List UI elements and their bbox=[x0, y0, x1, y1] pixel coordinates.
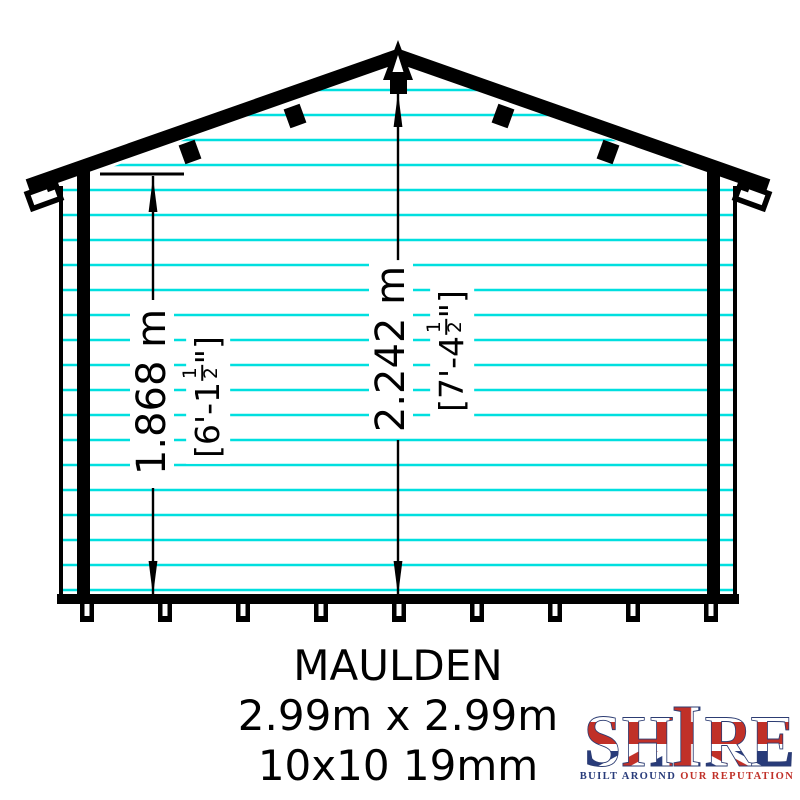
eave-height-imperial-label: [6'-112"] bbox=[186, 330, 230, 464]
arrow-up bbox=[394, 92, 403, 127]
ridge-height-metric-label: 2.242 m bbox=[369, 260, 413, 438]
roof-slope-right bbox=[398, 56, 768, 186]
shire-logo: S H I R E BUILT AROUND OUR REPUTATION bbox=[580, 682, 794, 786]
arrow-up bbox=[149, 177, 158, 212]
logo-tagline: BUILT AROUND OUR REPUTATION bbox=[580, 771, 794, 782]
purlin-block bbox=[179, 140, 202, 165]
tagline-right: OUR REPUTATION bbox=[676, 771, 794, 782]
fraction: 12 bbox=[182, 365, 222, 381]
tagline-left: BUILT AROUND bbox=[580, 771, 676, 782]
shed-elevation-diagram: 1.868 m [6'-112"] 2.242 m [7'-412"] MAUL… bbox=[0, 0, 800, 800]
ridge-height-imperial-label: [7'-412"] bbox=[430, 284, 474, 418]
fraction: 12 bbox=[426, 319, 466, 335]
left-corner-post bbox=[77, 170, 90, 599]
purlin-block bbox=[597, 140, 620, 165]
purlin-block bbox=[492, 104, 515, 129]
right-corner-post bbox=[707, 170, 720, 599]
roof-slope-left bbox=[28, 56, 398, 186]
purlin-block bbox=[284, 104, 307, 129]
eave-height-metric-label: 1.868 m bbox=[130, 303, 174, 481]
